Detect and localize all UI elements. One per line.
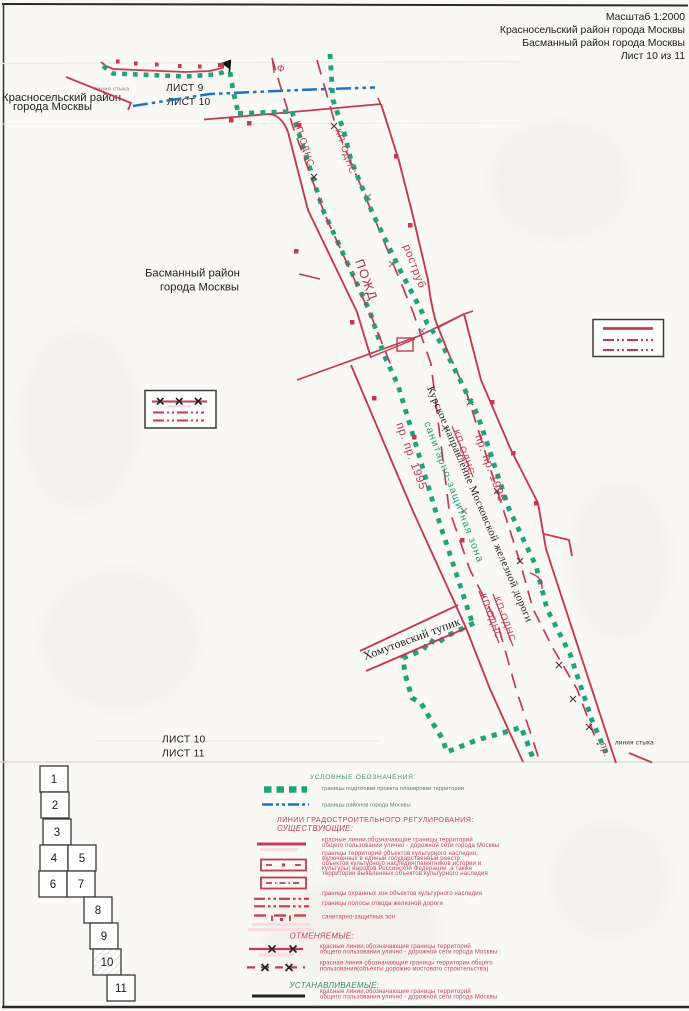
svg-text:Масштаб 1:2000: Масштаб 1:2000	[606, 11, 685, 23]
svg-text:ЛИСТ 11: ЛИСТ 11	[162, 749, 205, 760]
svg-text:ЛИСТ 9: ЛИСТ 9	[166, 83, 204, 94]
svg-text:7: 7	[78, 879, 84, 891]
svg-text:пользования(объекты дорожно мо: пользования(объекты дорожно мостового ст…	[320, 966, 489, 972]
svg-text:СУЩЕСТВУЮЩИЕ:: СУЩЕСТВУЮЩИЕ:	[277, 824, 353, 833]
svg-text:1: 1	[51, 774, 57, 786]
svg-text:санитарно-защитных зон: санитарно-защитных зон	[322, 915, 395, 921]
svg-text:общего пользования улично - до: общего пользования улично - дорожной сет…	[320, 994, 497, 1001]
svg-text:линия стыка: линия стыка	[615, 740, 654, 747]
svg-text:9: 9	[101, 931, 107, 943]
svg-text:Басманный район: Басманный район	[145, 268, 240, 280]
svg-text:8: 8	[95, 905, 101, 917]
svg-text:ЛИСТ 10: ЛИСТ 10	[162, 735, 206, 746]
svg-text:Лист 10 из 11: Лист 10 из 11	[621, 51, 685, 62]
svg-text:общего пользования улично - до: общего пользования улично - дорожной сет…	[320, 949, 497, 956]
svg-text:6: 6	[50, 879, 56, 891]
svg-text:общего пользования улично - до: общего пользования улично - дорожной сет…	[322, 842, 499, 849]
svg-text:границы охранных зон объектов: границы охранных зон объектов культурног…	[322, 891, 482, 897]
svg-text:границы полосы отвода железной: границы полосы отвода железной дороги	[322, 900, 443, 907]
svg-text:ОТМЕНЯЕМЫЕ:: ОТМЕНЯЕМЫЕ:	[290, 932, 354, 941]
svg-text:10: 10	[101, 957, 114, 969]
svg-text:границы подготовки проекта пла: границы подготовки проекта планировки те…	[322, 786, 464, 792]
svg-text:города Москвы: города Москвы	[160, 282, 239, 294]
svg-text:территории выявленных объектов: территории выявленных объектов культурно…	[322, 871, 488, 877]
svg-text:11: 11	[115, 983, 127, 995]
svg-text:4: 4	[51, 853, 58, 865]
svg-text:УСЛОВНЫЕ ОБОЗНАЧЕНИЯ:: УСЛОВНЫЕ ОБОЗНАЧЕНИЯ:	[310, 774, 416, 781]
svg-text:5: 5	[79, 853, 85, 865]
svg-text:города Москвы: города Москвы	[13, 101, 92, 113]
svg-text:Басманный район города Москвы: Басманный район города Москвы	[522, 38, 685, 49]
svg-text:границы районов города Москвы: границы районов города Москвы	[322, 802, 411, 809]
svg-text:ЛИНИИ ГРАДОСТРОИТЕЛЬНОГО РЕГУЛ: ЛИНИИ ГРАДОСТРОИТЕЛЬНОГО РЕГУЛИРОВАНИЯ:	[277, 815, 474, 824]
svg-text:2: 2	[52, 800, 58, 812]
svg-text:3: 3	[54, 827, 60, 839]
svg-text:Красносельский район города Мо: Красносельский район города Москвы	[500, 25, 685, 36]
